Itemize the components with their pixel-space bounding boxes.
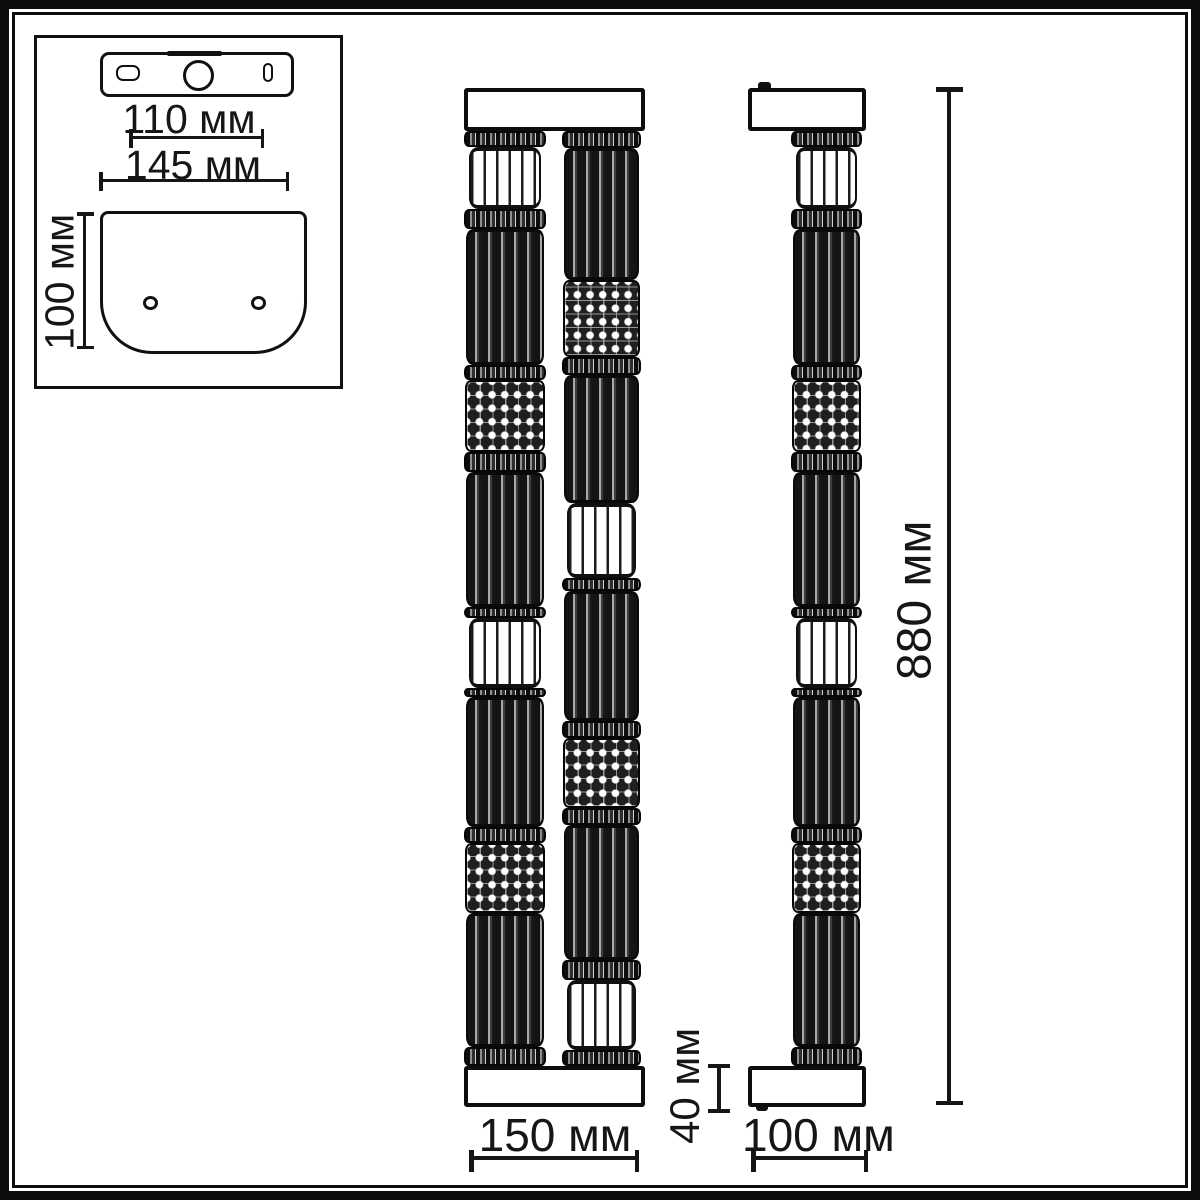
column-segment-ring <box>791 209 862 229</box>
dim-total-height-label: 880 мм <box>884 455 946 745</box>
column-segment-ring <box>464 452 546 472</box>
bracket-top-view <box>100 52 294 97</box>
column-segment-ring <box>464 688 546 697</box>
column-segment-ring <box>464 365 546 380</box>
column-segment-dark <box>793 697 860 827</box>
column-segment-ring <box>464 209 546 229</box>
column-segment-ring <box>562 808 641 825</box>
column-segment-ring <box>562 578 641 591</box>
dim-bracket-outer-line <box>100 179 288 182</box>
bracket-slot-right <box>263 63 273 82</box>
column-segment-ring <box>791 688 862 697</box>
column-segment-dark <box>564 375 638 503</box>
side-bottom-cap <box>748 1066 866 1107</box>
column-segment-ring <box>562 960 641 980</box>
column-segment-ring <box>464 827 546 843</box>
dim-base-width-label: 100 мм <box>742 1108 872 1162</box>
column-segment-ring <box>562 357 641 375</box>
column-segment-dark <box>466 229 543 365</box>
column-segment-ring <box>464 1047 546 1066</box>
dim-base-width-line <box>752 1156 867 1160</box>
column-segment-dark <box>564 825 638 960</box>
column-segment-dots <box>563 738 640 808</box>
bracket-slot-left <box>116 65 140 81</box>
column-segment-dark <box>466 697 543 827</box>
column-segment-ring <box>562 1050 641 1066</box>
dim-bracket-inner-line <box>130 136 263 139</box>
side-top-cap <box>748 88 866 131</box>
dim-plate-height-label: 100 мм <box>37 206 83 358</box>
technical-drawing-stage: 110 мм 145 мм 100 мм 150 мм 880 мм 40 мм <box>0 0 1200 1200</box>
bracket-center-hole <box>183 60 214 91</box>
column-segment-dark <box>793 913 860 1047</box>
column-segment-white <box>469 147 540 209</box>
column-segment-dots <box>563 280 640 357</box>
column-segment-dark <box>564 591 638 721</box>
column-segment-ring <box>562 131 641 148</box>
dim-front-width-line <box>470 1156 638 1160</box>
column-segment-ring <box>791 365 862 380</box>
backplate-hole-left <box>143 296 158 310</box>
column-segment-white <box>796 618 858 688</box>
front-left-column <box>464 131 546 1066</box>
column-segment-dots <box>465 843 545 913</box>
column-segment-white <box>796 147 858 209</box>
column-segment-dark <box>793 229 860 365</box>
column-segment-ring <box>791 452 862 472</box>
front-bottom-cap <box>464 1066 645 1107</box>
dim-base-height-bracket <box>708 1064 730 1113</box>
column-segment-white <box>469 618 540 688</box>
column-segment-dark <box>466 472 543 607</box>
side-column <box>791 131 862 1066</box>
backplate-view <box>100 211 307 354</box>
column-segment-ring <box>464 607 546 618</box>
front-top-cap <box>464 88 645 131</box>
column-segment-dots <box>792 843 862 913</box>
column-segment-ring <box>791 607 862 618</box>
column-segment-dots <box>792 380 862 452</box>
column-segment-dark <box>564 148 638 280</box>
column-segment-white <box>567 503 636 578</box>
column-segment-ring <box>791 827 862 843</box>
column-segment-dark <box>793 472 860 607</box>
column-segment-dark <box>466 913 543 1047</box>
column-segment-ring <box>791 1047 862 1066</box>
dim-base-height-label: 40 мм <box>660 1008 710 1163</box>
inset-panel: 110 мм 145 мм 100 мм <box>34 35 343 389</box>
column-segment-white <box>567 980 636 1050</box>
column-segment-ring <box>562 721 641 738</box>
column-segment-ring <box>791 131 862 147</box>
bracket-notch <box>167 51 222 56</box>
dim-front-width-label: 150 мм <box>455 1108 655 1162</box>
front-right-column <box>562 131 641 1066</box>
dim-total-height-line <box>947 88 951 1104</box>
column-segment-ring <box>464 131 546 147</box>
column-segment-dots <box>465 380 545 452</box>
backplate-hole-right <box>251 296 266 310</box>
